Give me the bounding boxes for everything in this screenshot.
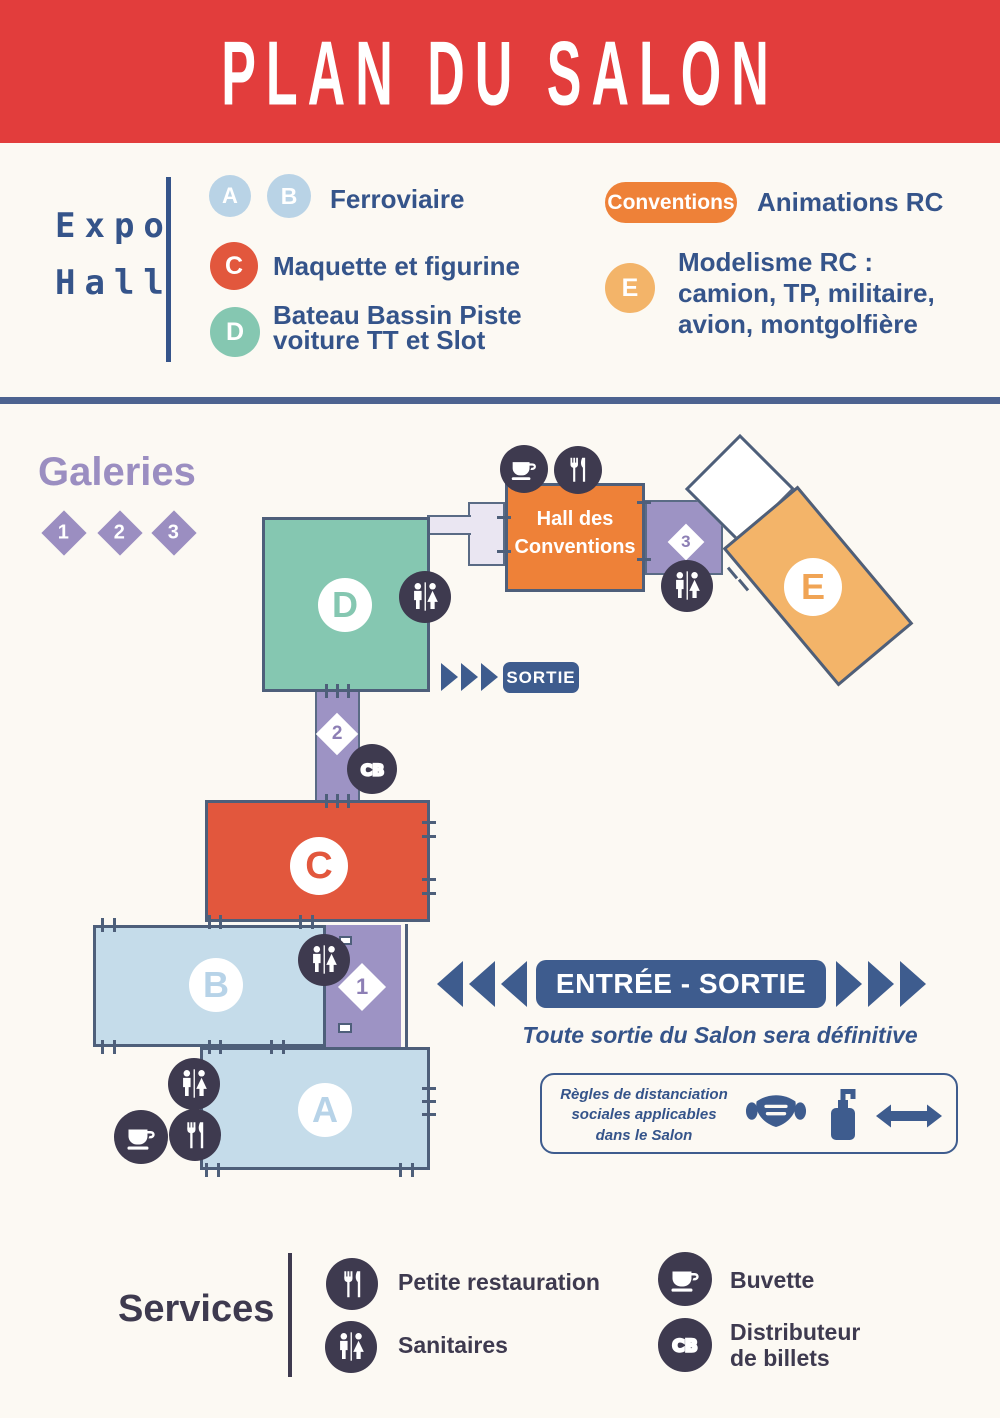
- sortie-arrow: [461, 663, 478, 691]
- service-label-distributeur: Distributeur de billets: [730, 1320, 860, 1372]
- sortie-arrow: [481, 663, 498, 691]
- hall-letter: A: [312, 1089, 338, 1131]
- gallery-2-legend-diamond: 2: [97, 510, 142, 555]
- door-tick: [270, 1040, 273, 1054]
- entrance-door-mark: [338, 1023, 352, 1033]
- coffee-icon: [500, 445, 548, 493]
- cutlery-icon: [169, 1109, 221, 1161]
- door-tick: [422, 821, 436, 824]
- door-tick: [738, 579, 749, 592]
- entree-sortie-label: ENTRÉE - SORTIE: [556, 968, 806, 1000]
- legend-badge-e: E: [605, 263, 655, 313]
- link-corridor-horizontal: [427, 515, 471, 535]
- entree-arrow-left: [437, 961, 463, 1007]
- header-bar: PLAN DU SALON: [0, 0, 1000, 143]
- door-tick: [727, 567, 738, 580]
- door-tick: [205, 1163, 208, 1177]
- hall-conventions-label: Hall des Conventions: [505, 505, 645, 561]
- door-tick: [208, 915, 211, 929]
- entree-arrow-left: [501, 961, 527, 1007]
- door-tick: [347, 684, 350, 698]
- door-tick: [347, 794, 350, 808]
- door-tick: [299, 915, 302, 929]
- door-tick: [282, 1040, 285, 1054]
- door-tick: [422, 1087, 436, 1090]
- toilets-icon: [399, 571, 451, 623]
- gallery-number: 3: [168, 522, 179, 545]
- exit-note: Toute sortie du Salon sera définitive: [440, 1022, 1000, 1049]
- hall-d-letter: D: [318, 578, 372, 632]
- gallery-number: 3: [681, 532, 690, 552]
- legend-label-bateau-line2: voiture TT et Slot: [273, 325, 485, 356]
- legend-badge-b: B: [267, 174, 311, 218]
- services-title: Services: [118, 1288, 274, 1331]
- door-tick: [101, 918, 104, 932]
- door-tick: [497, 516, 511, 519]
- rules-line2: sociales applicables: [552, 1105, 736, 1125]
- distance-arrow-icon: [876, 1100, 942, 1132]
- legend-badge-a: A: [209, 175, 251, 217]
- door-tick: [208, 1040, 211, 1054]
- page-title: PLAN DU SALON: [0, 22, 1000, 127]
- legend-label-maquette: Maquette et figurine: [273, 251, 520, 282]
- badge-letter: B: [281, 183, 298, 210]
- badge-letter: E: [622, 274, 639, 303]
- entree-arrow-right: [900, 961, 926, 1007]
- hall-letter: C: [305, 845, 332, 888]
- legend-divider: [166, 177, 171, 362]
- entree-arrow-left: [469, 961, 495, 1007]
- hall-b-letter: B: [189, 958, 243, 1012]
- galleries-title: Galeries: [38, 450, 196, 495]
- mask-icon: [745, 1091, 807, 1135]
- door-tick: [113, 1040, 116, 1054]
- toilets-icon: [298, 934, 350, 986]
- sortie-label: SORTIE: [506, 668, 575, 688]
- sortie-arrow: [441, 663, 458, 691]
- door-tick: [422, 1113, 436, 1116]
- door-tick: [311, 915, 314, 929]
- expo-hall-label-line2: Hall: [55, 263, 173, 303]
- plan-du-salon-poster: PLAN DU SALON Expo Hall A B Ferroviaire …: [0, 0, 1000, 1418]
- gallery-number: 1: [58, 522, 69, 545]
- rules-line3: dans le Salon: [552, 1126, 736, 1146]
- door-tick: [399, 1163, 402, 1177]
- legend-label-modelisme-line2: camion, TP, militaire,: [678, 278, 935, 309]
- legend-badge-conventions: Conventions: [605, 182, 737, 223]
- sortie-sign: SORTIE: [503, 662, 579, 693]
- distributeur-line1: Distributeur: [730, 1320, 860, 1346]
- door-tick: [325, 794, 328, 808]
- atm-icon: [347, 744, 397, 794]
- door-tick: [336, 794, 339, 808]
- door-tick: [101, 1040, 104, 1054]
- sanitizer-icon: [824, 1085, 862, 1143]
- gallery-number: 2: [332, 723, 343, 745]
- door-tick: [637, 501, 651, 504]
- hall-c-letter: C: [290, 837, 348, 895]
- entree-sortie-banner: ENTRÉE - SORTIE: [536, 960, 826, 1008]
- gallery-1-legend-diamond: 1: [41, 510, 86, 555]
- legend-label-modelisme-line3: avion, montgolfière: [678, 309, 918, 340]
- legend-label-ferroviaire: Ferroviaire: [330, 184, 464, 215]
- door-tick: [336, 684, 339, 698]
- hall-letter: B: [203, 964, 229, 1006]
- toilets-icon: [168, 1058, 220, 1110]
- hall-letter: D: [332, 584, 358, 626]
- service-label-sanitaires: Sanitaires: [398, 1333, 508, 1359]
- door-tick: [219, 1040, 222, 1054]
- coffee-icon: [658, 1252, 712, 1306]
- door-tick: [411, 1163, 414, 1177]
- service-label-buvette: Buvette: [730, 1268, 814, 1294]
- hall-letter: E: [801, 566, 825, 608]
- expo-hall-label-line1: Expo: [55, 206, 173, 246]
- badge-label: Conventions: [607, 191, 734, 215]
- hall-a-letter: A: [298, 1083, 352, 1137]
- gallery-number: 1: [356, 974, 368, 1000]
- door-tick: [637, 558, 651, 561]
- coffee-icon: [114, 1110, 168, 1164]
- entree-arrow-right: [836, 961, 862, 1007]
- door-tick: [422, 878, 436, 881]
- services-divider: [288, 1253, 292, 1377]
- badge-letter: C: [225, 252, 243, 281]
- distributeur-line2: de billets: [730, 1346, 860, 1372]
- hall-conventions-line2: Conventions: [505, 533, 645, 561]
- cutlery-icon: [554, 446, 602, 494]
- gallery-number: 2: [114, 522, 125, 545]
- section-divider: [0, 397, 1000, 404]
- hall-conventions-line1: Hall des: [505, 505, 645, 533]
- legend-label-modelisme-line1: Modelisme RC :: [678, 247, 873, 278]
- door-tick: [422, 835, 436, 838]
- link-corridor-vertical: [468, 502, 505, 566]
- door-tick: [219, 915, 222, 929]
- rules-line1: Règles de distanciation: [552, 1085, 736, 1105]
- legend-badge-c: C: [210, 242, 258, 290]
- gallery-3-legend-diamond: 3: [151, 510, 196, 555]
- service-label-restauration: Petite restauration: [398, 1270, 600, 1296]
- door-tick: [113, 918, 116, 932]
- corridor-1-wall: [405, 924, 408, 1048]
- badge-letter: D: [226, 318, 244, 347]
- badge-letter: A: [222, 183, 238, 209]
- door-tick: [497, 550, 511, 553]
- toilets-icon: [661, 560, 713, 612]
- toilets-icon: [325, 1321, 377, 1373]
- door-tick: [422, 892, 436, 895]
- atm-icon: [658, 1318, 712, 1372]
- entree-arrow-right: [868, 961, 894, 1007]
- door-tick: [325, 684, 328, 698]
- door-tick: [422, 1100, 436, 1103]
- distancing-rules-text: Règles de distanciation sociales applica…: [552, 1085, 736, 1146]
- door-tick: [217, 1163, 220, 1177]
- hall-e-letter: E: [784, 558, 842, 616]
- cutlery-icon: [326, 1258, 378, 1310]
- legend-label-animations: Animations RC: [757, 187, 943, 218]
- legend-badge-d: D: [210, 307, 260, 357]
